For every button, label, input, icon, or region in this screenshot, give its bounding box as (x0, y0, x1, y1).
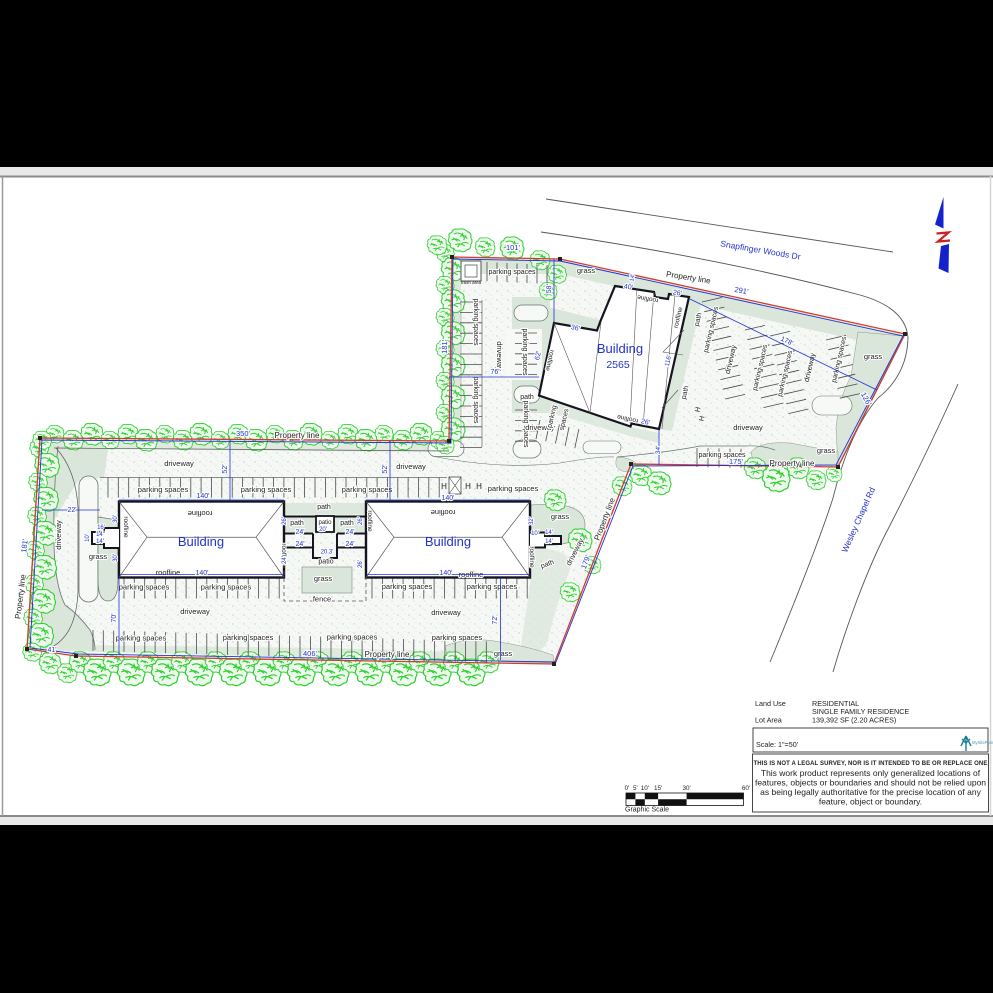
svg-text:Building: Building (178, 534, 224, 549)
svg-text:52': 52' (222, 464, 229, 473)
svg-text:grass: grass (494, 649, 513, 658)
svg-text:driveway: driveway (164, 459, 194, 468)
svg-text:parking spaces: parking spaces (488, 484, 539, 493)
svg-text:H: H (476, 482, 482, 491)
svg-text:24': 24' (345, 541, 354, 548)
svg-text:26': 26' (282, 517, 288, 525)
svg-text:grass: grass (817, 446, 836, 455)
svg-text:Graphic Scale: Graphic Scale (625, 807, 669, 814)
svg-text:Land Use: Land Use (755, 699, 786, 708)
svg-text:406': 406' (303, 649, 318, 658)
svg-text:This work product represents o: This work product represents only genera… (761, 768, 981, 778)
svg-text:path: path (520, 394, 534, 401)
svg-text:parking spaces: parking spaces (241, 485, 292, 494)
svg-text:grass: grass (551, 512, 570, 521)
svg-text:20.3': 20.3' (321, 550, 334, 556)
svg-text:as being legally authoritative: as being legally authoritative for the p… (760, 787, 981, 797)
svg-text:140': 140' (196, 493, 209, 500)
svg-text:16': 16' (97, 525, 105, 531)
svg-text:14': 14' (545, 539, 553, 545)
svg-text:parking spaces: parking spaces (472, 376, 479, 424)
svg-text:roofline: roofline (528, 546, 535, 568)
svg-text:32': 32' (529, 517, 535, 525)
svg-text:parking spaces: parking spaces (201, 583, 252, 592)
svg-text:Building: Building (597, 341, 643, 356)
svg-text:roofline: roofline (431, 508, 456, 517)
svg-text:30': 30' (113, 515, 119, 523)
svg-text:parking spaces: parking spaces (342, 485, 393, 494)
svg-text:feature, object or boundary.: feature, object or boundary. (819, 797, 922, 807)
svg-text:H: H (465, 482, 471, 491)
svg-text:parking spaces: parking spaces (116, 634, 167, 643)
svg-text:grass: grass (864, 352, 883, 361)
svg-text:grass: grass (89, 552, 108, 561)
svg-text:parking spaces: parking spaces (488, 269, 536, 276)
svg-text:THIS IS NOT A LEGAL SURVEY, NO: THIS IS NOT A LEGAL SURVEY, NOR IS IT IN… (754, 761, 988, 767)
svg-text:10': 10' (85, 534, 91, 542)
svg-text:roofline: roofline (122, 516, 129, 538)
svg-text:60': 60' (742, 785, 750, 792)
svg-text:patio: patio (318, 520, 332, 526)
svg-text:15': 15' (654, 785, 662, 792)
svg-text:14': 14' (96, 539, 104, 545)
svg-text:parking spaces: parking spaces (467, 582, 518, 591)
svg-text:roofline: roofline (366, 510, 373, 532)
svg-text:76': 76' (490, 369, 499, 376)
svg-text:140': 140' (439, 570, 452, 577)
svg-text:140': 140' (195, 570, 208, 577)
svg-text:24': 24' (345, 529, 354, 536)
svg-text:41': 41' (47, 647, 56, 654)
svg-text:parking spaces: parking spaces (382, 582, 433, 591)
svg-text:parking spaces: parking spaces (521, 328, 528, 376)
svg-text:driveway: driveway (180, 607, 210, 616)
svg-text:181': 181' (440, 339, 450, 354)
svg-text:0': 0' (625, 785, 630, 792)
svg-text:parking spaces: parking spaces (327, 633, 378, 642)
svg-text:350': 350' (236, 429, 251, 438)
svg-text:MySitePlan: MySitePlan (972, 740, 993, 745)
svg-text:181': 181' (19, 538, 30, 554)
svg-text:trash area: trash area (461, 280, 482, 285)
svg-text:driveway: driveway (495, 341, 504, 371)
svg-text:24': 24' (282, 556, 288, 564)
svg-text:features, objects or boundarie: features, objects or boundaries and shou… (755, 778, 986, 788)
svg-text:driveway: driveway (54, 520, 63, 550)
svg-text:14': 14' (545, 530, 553, 536)
svg-text:path: path (290, 520, 304, 527)
svg-text:10': 10' (641, 785, 649, 792)
svg-text:H: H (441, 482, 447, 491)
svg-text:Building: Building (425, 534, 471, 549)
svg-text:30': 30' (682, 785, 690, 792)
svg-text:Property line: Property line (275, 431, 320, 440)
svg-text:driveway: driveway (431, 608, 461, 617)
svg-text:grass: grass (314, 574, 333, 583)
svg-text:2565: 2565 (606, 359, 630, 371)
svg-text:139,392 SF (2.20 ACRES): 139,392 SF (2.20 ACRES) (812, 716, 896, 725)
svg-text:path: path (317, 504, 331, 511)
svg-text:parking spaces: parking spaces (472, 298, 479, 346)
svg-text:175': 175' (729, 457, 744, 466)
svg-text:10': 10' (531, 531, 539, 537)
svg-text:101': 101' (506, 243, 521, 252)
svg-text:parking spaces: parking spaces (223, 633, 274, 642)
svg-text:Property line: Property line (365, 650, 410, 659)
svg-text:22': 22' (67, 507, 76, 514)
svg-text:24': 24' (295, 529, 304, 536)
svg-text:fence: fence (313, 595, 331, 604)
svg-text:52': 52' (382, 464, 389, 473)
svg-text:14': 14' (96, 532, 104, 538)
svg-text:parking spaces: parking spaces (119, 583, 170, 592)
svg-text:parking spaces: parking spaces (432, 633, 483, 642)
svg-text:140': 140' (441, 495, 454, 502)
svg-text:5': 5' (633, 785, 638, 792)
svg-text:72': 72' (492, 615, 499, 624)
svg-text:30': 30' (113, 554, 119, 562)
svg-text:24': 24' (295, 541, 304, 548)
svg-text:20': 20' (319, 527, 327, 533)
svg-text:driveway: driveway (733, 423, 763, 432)
svg-text:34': 34' (655, 446, 662, 455)
svg-text:Property line: Property line (770, 459, 815, 468)
svg-text:grass: grass (577, 266, 596, 275)
svg-text:26': 26' (358, 560, 364, 568)
svg-text:70': 70' (111, 613, 118, 622)
svg-text:26': 26' (358, 517, 364, 525)
svg-text:driveway: driveway (396, 462, 426, 471)
svg-text:roofline: roofline (156, 568, 181, 577)
svg-text:parking spaces: parking spaces (138, 485, 189, 494)
svg-text:Scale: 1"=50': Scale: 1"=50' (756, 740, 799, 749)
svg-text:roofline: roofline (188, 509, 213, 518)
svg-text:patio: patio (318, 559, 333, 566)
svg-text:58': 58' (546, 284, 554, 294)
svg-text:Lot Area: Lot Area (755, 716, 782, 725)
svg-text:path: path (340, 520, 354, 527)
